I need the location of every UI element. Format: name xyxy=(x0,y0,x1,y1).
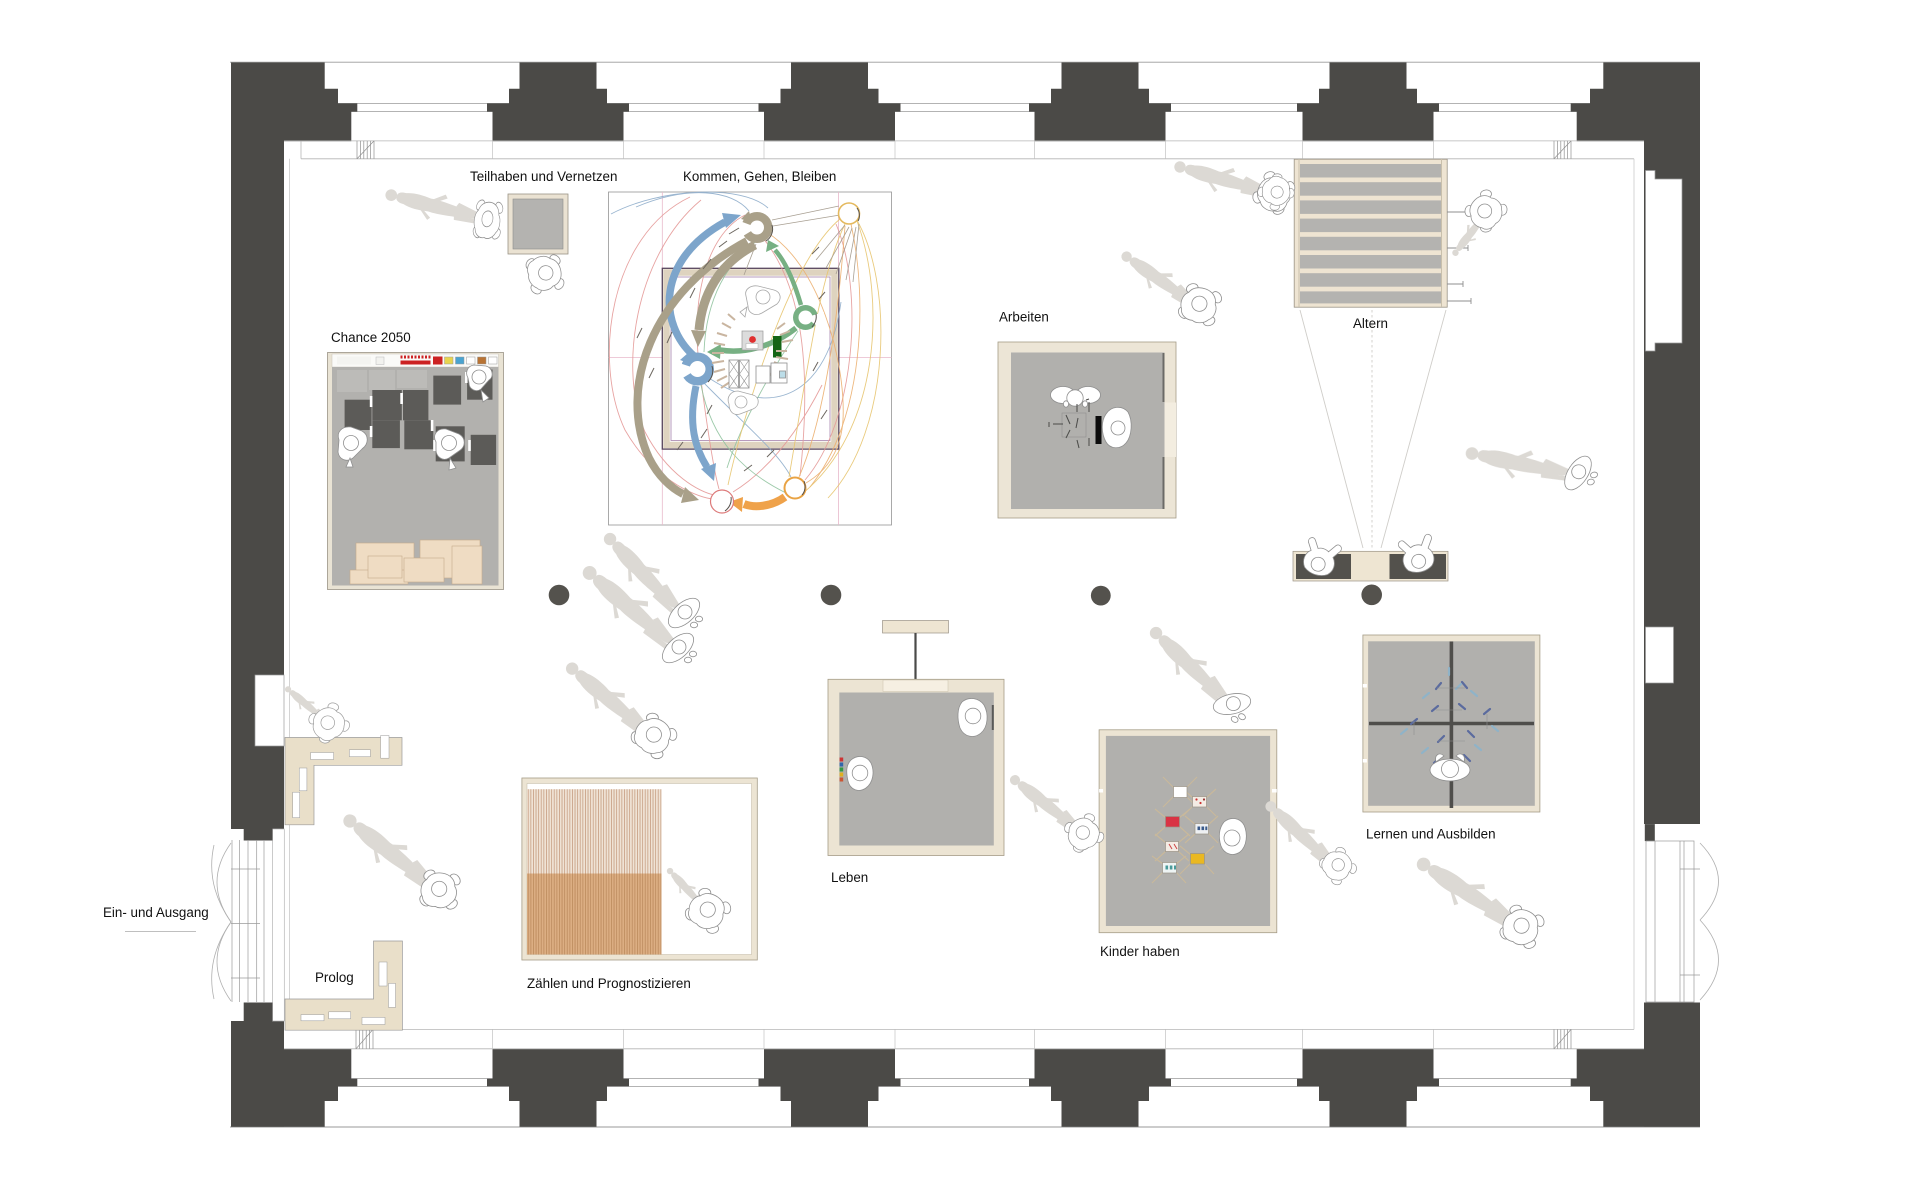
svg-text:Leben: Leben xyxy=(831,870,868,885)
svg-text:Ein- und Ausgang: Ein- und Ausgang xyxy=(103,905,209,920)
svg-text:Altern: Altern xyxy=(1353,316,1388,331)
svg-text:Kinder haben: Kinder haben xyxy=(1100,944,1180,959)
svg-text:Lernen und Ausbilden: Lernen und Ausbilden xyxy=(1366,827,1496,842)
svg-text:Chance 2050: Chance 2050 xyxy=(331,330,411,345)
svg-text:Arbeiten: Arbeiten xyxy=(999,310,1049,325)
svg-text:Prolog: Prolog xyxy=(315,970,354,985)
svg-text:Kommen, Gehen, Bleiben: Kommen, Gehen, Bleiben xyxy=(683,169,836,184)
svg-text:Teilhaben und Vernetzen: Teilhaben und Vernetzen xyxy=(470,169,617,184)
svg-text:Zählen und Prognostizieren: Zählen und Prognostizieren xyxy=(527,976,691,991)
